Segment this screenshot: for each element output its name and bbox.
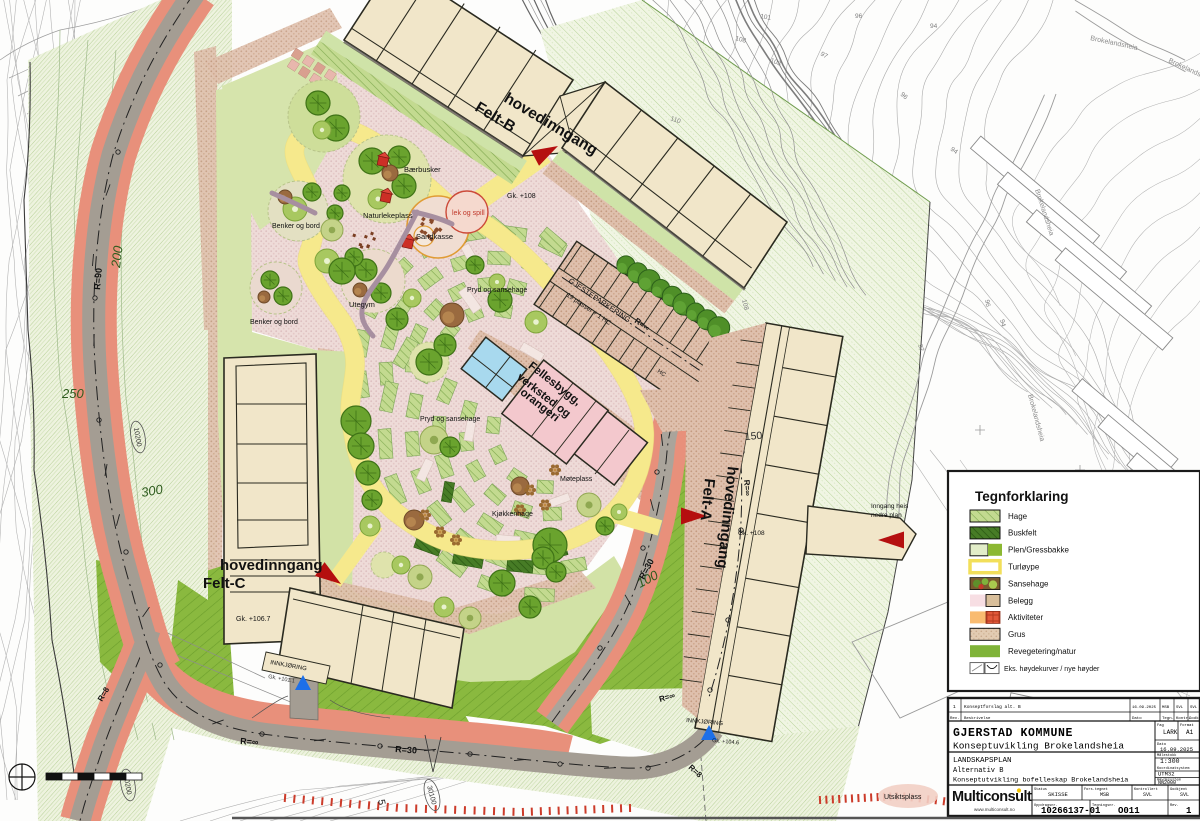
svg-text:Revegetering/natur: Revegetering/natur xyxy=(1008,647,1076,656)
svg-text:Format: Format xyxy=(1180,723,1194,728)
svg-text:LARK: LARK xyxy=(1163,729,1178,736)
svg-text:Benker og bord: Benker og bord xyxy=(272,223,320,230)
svg-text:1: 1 xyxy=(1186,806,1192,816)
svg-text:Utegym: Utegym xyxy=(349,300,375,309)
svg-text:Konseptutvikling bofelleskap B: Konseptutvikling bofelleskap Brokelandsh… xyxy=(953,777,1128,785)
svg-text:Alternativ B: Alternativ B xyxy=(953,767,1003,775)
svg-text:NN2000: NN2000 xyxy=(1158,780,1176,786)
svg-text:Rev.: Rev. xyxy=(1170,804,1179,808)
svg-text:Felt-C: Felt-C xyxy=(203,575,246,592)
svg-text:R=∞: R=∞ xyxy=(240,736,259,747)
svg-text:Inngang heis: Inngang heis xyxy=(871,503,909,510)
svg-text:LANDSKAPSPLAN: LANDSKAPSPLAN xyxy=(953,757,1012,765)
svg-text:UTM32: UTM32 xyxy=(1158,771,1175,778)
svg-text:R=90: R=90 xyxy=(92,268,104,291)
svg-text:Belegg: Belegg xyxy=(1008,596,1033,605)
svg-text:Tegn.: Tegn. xyxy=(1162,717,1174,721)
svg-text:MSB: MSB xyxy=(1162,706,1170,710)
svg-text:Pryd og sansehage: Pryd og sansehage xyxy=(467,287,527,294)
svg-text:Tegnforklaring: Tegnforklaring xyxy=(975,489,1069,504)
svg-text:Konseptforslag alt. B: Konseptforslag alt. B xyxy=(964,704,1021,710)
svg-text:SVL: SVL xyxy=(1143,792,1152,798)
svg-text:SVL: SVL xyxy=(1190,706,1198,710)
svg-text:MSB: MSB xyxy=(1100,792,1109,798)
svg-text:Grus: Grus xyxy=(1008,630,1025,639)
svg-text:R=∞: R=∞ xyxy=(742,479,752,496)
svg-text:Plen/Gressbakke: Plen/Gressbakke xyxy=(1008,546,1069,555)
svg-text:lek og spill: lek og spill xyxy=(452,210,485,217)
svg-text:Konseptuvikling Brokelandsheia: Konseptuvikling Brokelandsheia xyxy=(953,741,1124,752)
svg-text:Aktiviteter: Aktiviteter xyxy=(1008,613,1043,622)
svg-text:Buskfelt: Buskfelt xyxy=(1008,529,1037,538)
svg-text:Gk. +106.7: Gk. +106.7 xyxy=(236,616,271,623)
svg-text:Eks. høydekurver / nye høyder: Eks. høydekurver / nye høyder xyxy=(1004,666,1100,673)
svg-text:150: 150 xyxy=(744,430,762,443)
svg-text:1:300: 1:300 xyxy=(1160,758,1180,765)
svg-text:250: 250 xyxy=(61,386,84,401)
svg-text:Tegningsnr.: Tegningsnr. xyxy=(1092,803,1116,808)
svg-text:Utsiktsplass: Utsiktsplass xyxy=(884,794,922,801)
svg-text:96: 96 xyxy=(855,13,863,20)
svg-text:O011: O011 xyxy=(1118,806,1140,816)
svg-text:Gk. +108: Gk. +108 xyxy=(507,193,536,200)
svg-text:Sandkasse: Sandkasse xyxy=(416,232,453,241)
svg-text:94: 94 xyxy=(930,23,938,30)
svg-text:www.multiconsult.no: www.multiconsult.no xyxy=(974,807,1015,812)
svg-text:R=30: R=30 xyxy=(395,744,417,755)
svg-text:Møteplass: Møteplass xyxy=(560,476,593,483)
svg-text:Sansehage: Sansehage xyxy=(1008,579,1049,588)
svg-text:Kjøkkenhage: Kjøkkenhage xyxy=(492,511,533,518)
svg-text:Dato: Dato xyxy=(1132,717,1142,721)
svg-text:SVL: SVL xyxy=(1176,706,1184,710)
svg-text:1: 1 xyxy=(953,704,956,710)
svg-text:GJERSTAD KOMMUNE: GJERSTAD KOMMUNE xyxy=(953,727,1073,740)
svg-text:Status: Status xyxy=(1034,788,1047,792)
svg-text:Rev.: Rev. xyxy=(950,717,960,721)
svg-text:hovedinngang: hovedinngang xyxy=(220,557,323,574)
svg-text:Beskrivelse: Beskrivelse xyxy=(964,716,991,721)
svg-text:Fag: Fag xyxy=(1157,724,1164,728)
svg-text:16.09.2025: 16.09.2025 xyxy=(1132,706,1157,710)
svg-text:Turløype: Turløype xyxy=(1008,563,1040,572)
svg-text:Benker og bord: Benker og bord xyxy=(250,319,298,326)
svg-text:16.09.2025: 16.09.2025 xyxy=(1160,746,1193,753)
svg-text:Bærbusker: Bærbusker xyxy=(404,165,441,174)
svg-text:nedre plan: nedre plan xyxy=(871,512,902,519)
svg-text:A1: A1 xyxy=(1186,729,1194,736)
svg-text:Gk. +108: Gk. +108 xyxy=(738,530,765,537)
svg-text:Hage: Hage xyxy=(1008,512,1028,521)
svg-text:Pryd og sansehage: Pryd og sansehage xyxy=(420,416,480,423)
svg-text:Naturlekeplass: Naturlekeplass xyxy=(363,211,413,220)
svg-text:SVL: SVL xyxy=(1180,792,1189,798)
svg-text:SKISSE: SKISSE xyxy=(1048,791,1069,798)
svg-text:200: 200 xyxy=(108,244,126,269)
svg-text:Godkj.: Godkj. xyxy=(1189,716,1200,721)
